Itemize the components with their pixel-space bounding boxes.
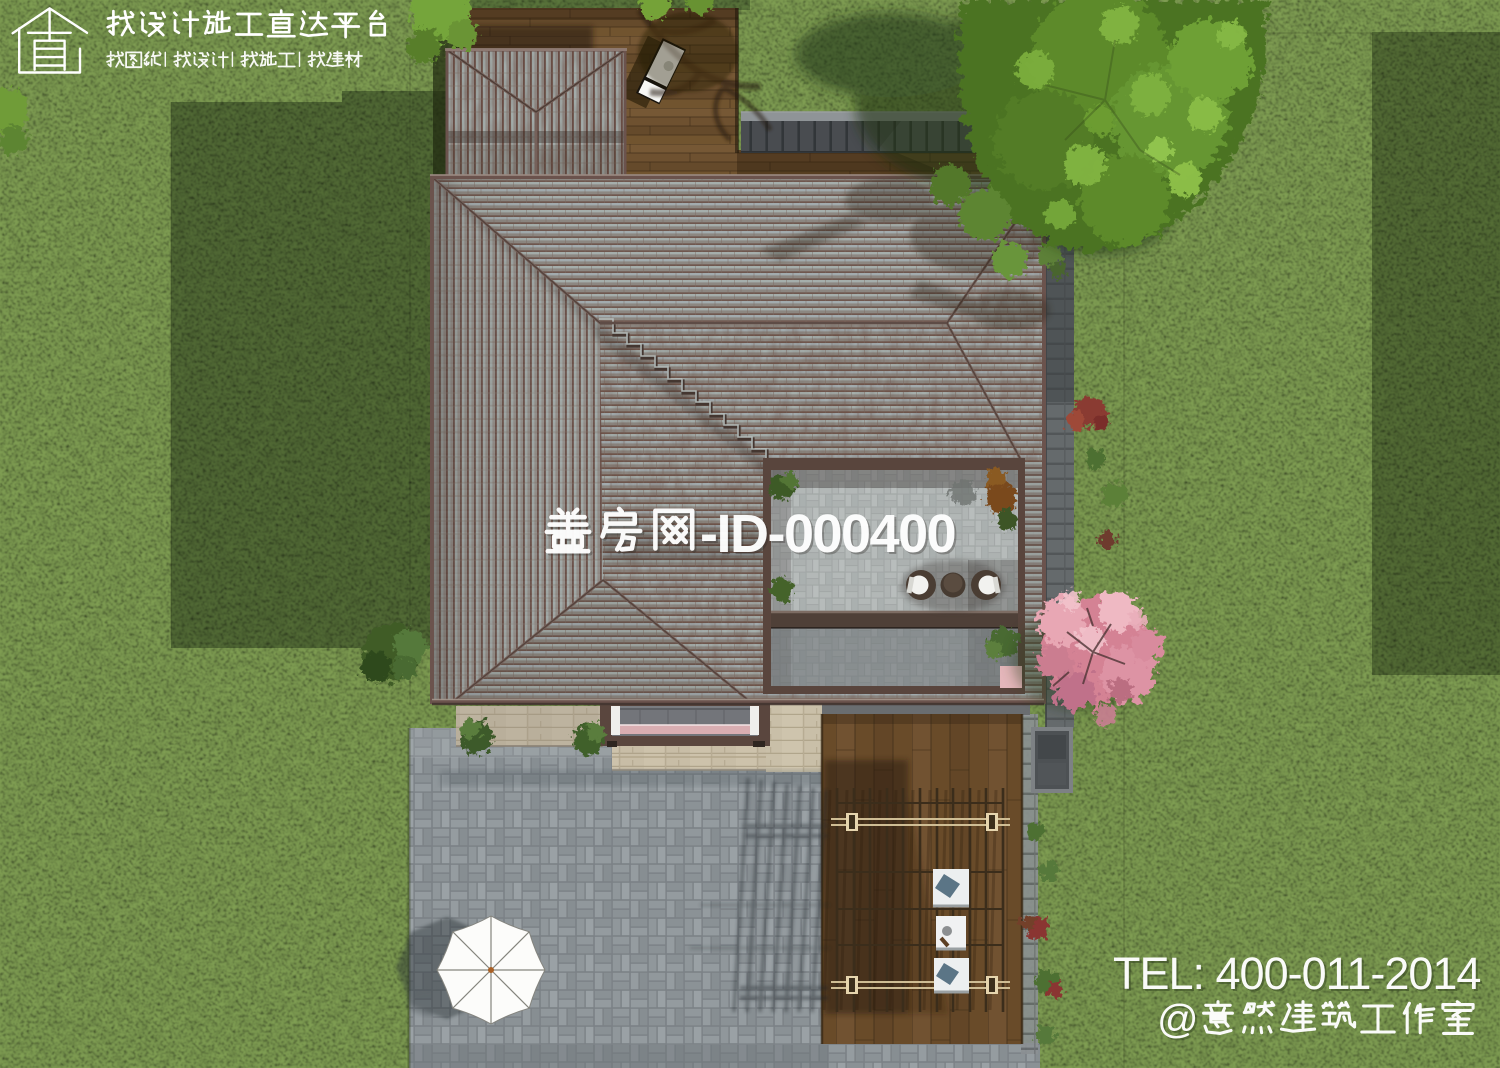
- svg-text:-ID-000400: -ID-000400: [700, 504, 955, 564]
- svg-text:@: @: [1157, 996, 1199, 1042]
- svg-text:TEL: 400-011-2014: TEL: 400-011-2014: [1113, 948, 1480, 999]
